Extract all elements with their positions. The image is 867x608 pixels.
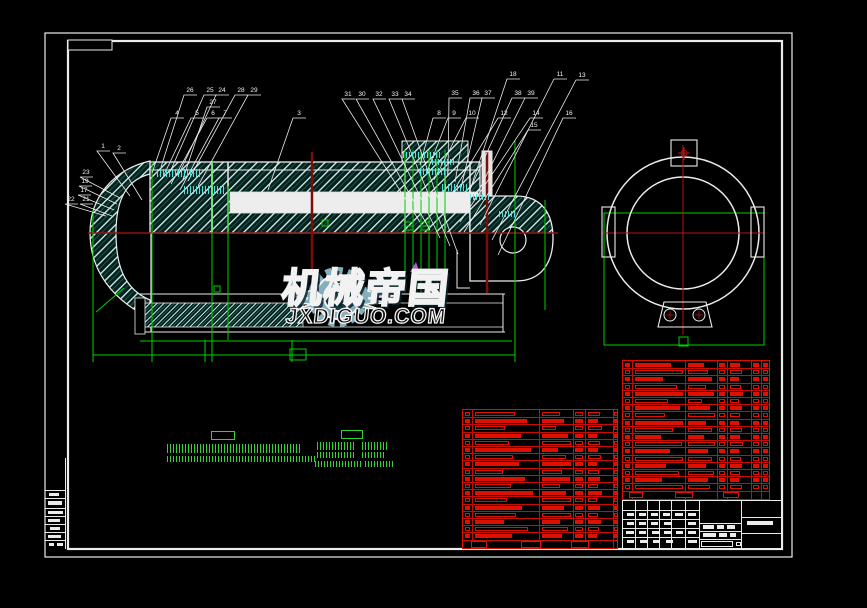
watermark-brand-text: 机械帝国 [280, 269, 452, 309]
table-cell-text [763, 428, 768, 432]
table-cell-text [753, 478, 759, 482]
title-block-line [623, 528, 699, 529]
table-cell-text [542, 441, 571, 445]
table-row-line [623, 455, 769, 456]
balloon-number: 15 [530, 122, 538, 129]
row-index-mark [625, 471, 630, 475]
title-block-line [635, 501, 636, 548]
table-cell-text [719, 485, 725, 489]
title-block-text [664, 531, 671, 534]
table-cell-text [635, 413, 665, 417]
table-cell-text [719, 478, 725, 482]
table-cell-text [730, 370, 742, 374]
table-cell-text [753, 471, 759, 475]
balloon-number: 35 [451, 90, 459, 97]
table-cell-text [588, 491, 602, 495]
table-cell-text [753, 435, 759, 439]
table-cell-text [719, 457, 725, 461]
row-index-mark [465, 534, 470, 538]
note-text-line [362, 452, 384, 458]
table-cell-text [719, 399, 725, 403]
strip-line [45, 524, 65, 525]
table-cell-text [614, 498, 618, 502]
table-cell-text [542, 455, 566, 459]
balloon-number: 17 [80, 187, 88, 194]
table-cell-text [763, 478, 768, 482]
table-row-line [463, 446, 617, 447]
table-cell-text [753, 428, 759, 432]
table-cell-text [575, 498, 583, 502]
row-index-mark [625, 478, 630, 482]
table-cell-text [635, 385, 677, 389]
table-row-line [623, 447, 769, 448]
table-cell-text [688, 421, 706, 425]
title-block [622, 500, 782, 549]
cyan-dimension-label [432, 159, 454, 165]
table-cell-text [475, 448, 531, 452]
parts-list-table [622, 360, 770, 500]
table-column-line [539, 410, 540, 548]
table-cell-text [719, 377, 725, 381]
row-index-mark [465, 448, 470, 452]
table-cell-text [753, 413, 759, 417]
title-block-text [653, 540, 660, 543]
table-row-line [463, 525, 617, 526]
table-row-line [623, 483, 769, 484]
table-cell-text [719, 471, 725, 475]
table-cell-text [753, 421, 759, 425]
table-cell-text [719, 435, 725, 439]
table-cell-text [753, 464, 759, 468]
balloon-number: 4 [175, 110, 179, 117]
strip-line [45, 516, 65, 517]
table-cell-text [542, 513, 571, 517]
balloon-number: 6 [211, 110, 215, 117]
drum-bore [230, 192, 478, 213]
row-index-mark [465, 455, 470, 459]
table-cell-text [635, 485, 683, 489]
table-cell-text [635, 406, 680, 410]
balloon-number: 18 [509, 71, 517, 78]
balloon-number: 12 [500, 110, 508, 117]
table-cell-text [475, 455, 513, 459]
table-row-line [463, 532, 617, 533]
table-cell-text [575, 419, 583, 423]
table-cell-text [688, 399, 702, 403]
table-cell-text [575, 441, 583, 445]
footer-box [629, 492, 643, 498]
row-index-mark [625, 399, 630, 403]
table-cell-text [635, 421, 683, 425]
title-block-line [623, 537, 699, 538]
table-cell-text [719, 413, 725, 417]
balloon-number: 26 [186, 87, 194, 94]
title-block-text [747, 521, 773, 525]
row-index-mark [465, 506, 470, 510]
balloon-number: 10 [468, 110, 476, 117]
table-row-line [463, 439, 617, 440]
table-cell-text [588, 498, 597, 502]
end-cap-port [500, 227, 526, 253]
table-cell-text [614, 527, 618, 531]
table-row-line [463, 504, 617, 505]
row-index-mark [625, 385, 630, 389]
row-index-mark [625, 363, 630, 367]
table-cell-text [730, 421, 739, 425]
table-cell-text [688, 485, 710, 489]
strip-text [48, 511, 63, 514]
table-column-line [685, 361, 686, 499]
strip-text [48, 519, 60, 522]
table-column-line [751, 361, 752, 499]
table-row-line [463, 518, 617, 519]
row-index-mark [465, 462, 470, 466]
row-index-mark [625, 428, 630, 432]
table-cell-text [542, 470, 562, 474]
cyan-dimension-label [442, 184, 468, 191]
table-cell-text [575, 527, 583, 531]
table-cell-text [575, 477, 583, 481]
row-index-mark [625, 413, 630, 417]
table-cell-text [730, 413, 740, 417]
title-block-text [639, 531, 646, 534]
table-cell-text [688, 413, 715, 417]
table-column-line [472, 410, 473, 548]
inner-tube-section [143, 303, 303, 327]
table-cell-text [575, 484, 583, 488]
cyan-dimension-label [157, 169, 201, 177]
title-block-text [688, 513, 696, 516]
table-cell-text [614, 419, 618, 423]
table-cell-text [475, 484, 511, 488]
balloon-number: 39 [527, 90, 535, 97]
table-cell-text [635, 442, 682, 446]
table-cell-text [719, 370, 725, 374]
balloon-number: 27 [209, 99, 217, 106]
table-cell-text [475, 441, 509, 445]
row-index-mark [465, 498, 470, 502]
table-row-line [463, 496, 617, 497]
table-cell-text [542, 477, 570, 481]
strip-text [49, 543, 54, 546]
table-cell-text [542, 498, 571, 502]
title-block-text [627, 522, 634, 525]
table-cell-text [730, 442, 743, 446]
table-footer-line [623, 491, 769, 492]
datum-square [214, 286, 220, 292]
table-cell-text [763, 370, 768, 374]
table-cell-text [475, 434, 521, 438]
table-cell-text [575, 412, 583, 416]
table-cell-text [588, 484, 598, 488]
table-cell-text [763, 363, 768, 367]
title-block-text [703, 533, 716, 537]
table-column-line [761, 361, 762, 499]
table-cell-text [588, 462, 597, 466]
title-block-line [685, 501, 686, 548]
strip-text [57, 543, 63, 546]
table-cell-text [475, 477, 525, 481]
table-cell-text [688, 435, 704, 439]
title-block-text [676, 531, 683, 534]
balloon-number: 11 [557, 71, 564, 78]
table-cell-text [753, 406, 759, 410]
strip-line [45, 490, 65, 491]
table-cell-text [688, 478, 708, 482]
table-cell-text [575, 426, 583, 430]
table-cell-text [753, 392, 759, 396]
table-row-line [623, 433, 769, 434]
table-cell-text [542, 412, 560, 416]
balloon-number: 32 [375, 91, 383, 98]
title-block-text [626, 531, 634, 534]
table-cell-text [688, 457, 712, 461]
row-index-mark [465, 441, 470, 445]
title-block-line [741, 517, 783, 518]
title-block-line [623, 510, 699, 511]
table-cell-text [753, 485, 759, 489]
strip-line [45, 540, 65, 541]
table-row-line [463, 417, 617, 418]
table-row-line [623, 462, 769, 463]
table-cell-text [763, 406, 768, 410]
title-block-text [640, 540, 647, 543]
table-cell-text [614, 426, 618, 430]
title-block-text [688, 540, 697, 543]
table-cell-text [753, 442, 759, 446]
row-index-mark [625, 406, 630, 410]
table-cell-text [588, 448, 598, 452]
note-text-line [317, 442, 355, 450]
table-cell-text [542, 462, 571, 466]
title-block-text [639, 513, 646, 516]
cyan-dimension-label [420, 168, 448, 175]
table-cell-text [588, 441, 600, 445]
parts-list-table [462, 409, 618, 549]
table-cell-text [575, 434, 583, 438]
end-view [602, 140, 764, 335]
title-block-line [699, 539, 741, 540]
table-cell-text [730, 428, 742, 432]
balloon-number: 30 [358, 91, 366, 98]
title-block-line [741, 533, 783, 534]
table-row-line [623, 375, 769, 376]
table-row-line [623, 469, 769, 470]
balloon-number: 7 [223, 110, 227, 117]
table-cell-text [542, 434, 568, 438]
table-cell-text [719, 428, 725, 432]
table-cell-text [730, 449, 739, 453]
title-block-line [623, 519, 699, 520]
title-block-text [675, 513, 683, 516]
table-cell-text [730, 471, 740, 475]
table-cell-text [614, 520, 618, 524]
table-cell-text [475, 498, 507, 502]
table-row-line [623, 404, 769, 405]
table-row-line [463, 424, 617, 425]
table-cell-text [719, 385, 725, 389]
table-cell-text [588, 513, 598, 517]
table-cell-text [635, 363, 671, 367]
table-cell-text [635, 471, 679, 475]
row-index-mark [465, 520, 470, 524]
table-column-line [727, 361, 728, 499]
table-cell-text [763, 385, 768, 389]
table-cell-text [763, 413, 768, 417]
table-cell-text [588, 520, 601, 524]
table-cell-text [614, 448, 618, 452]
balloon-number: 22 [67, 196, 75, 203]
row-index-mark [465, 419, 470, 423]
table-cell-text [730, 478, 739, 482]
table-cell-text [719, 392, 725, 396]
table-cell-text [614, 491, 618, 495]
table-cell-text [542, 506, 564, 510]
table-cell-text [688, 406, 710, 410]
balloon-number: 2 [117, 145, 121, 152]
title-block-text [652, 531, 659, 534]
table-cell-text [542, 534, 562, 538]
table-cell-text [763, 392, 768, 396]
note-heading-box [211, 431, 235, 440]
row-index-mark [465, 527, 470, 531]
table-cell-text [588, 412, 600, 416]
table-cell-text [730, 435, 740, 439]
table-cell-text [588, 527, 599, 531]
footer-box [471, 541, 487, 548]
title-block-box [701, 541, 733, 547]
table-cell-text [688, 471, 714, 475]
table-row-line [623, 397, 769, 398]
note-text-line [315, 461, 361, 467]
table-cell-text [614, 513, 618, 517]
table-cell-text [588, 477, 600, 481]
strip-text [48, 501, 62, 505]
table-cell-text [763, 485, 768, 489]
balloon-number: 25 [206, 87, 214, 94]
table-cell-text [763, 435, 768, 439]
table-column-line [717, 361, 718, 499]
table-cell-text [588, 419, 598, 423]
table-cell-text [542, 484, 560, 488]
table-cell-text [475, 491, 533, 495]
table-cell-text [763, 442, 768, 446]
title-block-text [627, 540, 634, 543]
title-block-line [699, 531, 741, 532]
table-cell-text [719, 464, 725, 468]
strip-line [45, 498, 65, 499]
footer-box [521, 541, 541, 548]
title-block-line [699, 501, 700, 548]
balloon-number: 29 [250, 87, 258, 94]
table-cell-text [753, 449, 759, 453]
table-cell-text [575, 513, 583, 517]
table-cell-text [719, 406, 725, 410]
corner-part-tag [68, 40, 112, 50]
table-cell-text [763, 421, 768, 425]
table-cell-text [575, 462, 583, 466]
table-cell-text [542, 527, 568, 531]
title-block-text [651, 513, 658, 516]
table-cell-text [730, 377, 739, 381]
table-cell-text [575, 491, 583, 495]
title-block-text [663, 513, 670, 516]
table-cell-text [575, 534, 583, 538]
strip-line [45, 532, 65, 533]
table-cell-text [475, 462, 519, 466]
table-cell-text [730, 363, 740, 367]
footer-box [675, 492, 693, 498]
strip-text [50, 527, 60, 530]
table-cell-text [475, 506, 522, 510]
table-cell-text [475, 520, 504, 524]
table-cell-text [688, 363, 704, 367]
balloon-number: 38 [514, 90, 522, 97]
table-column-line [585, 410, 586, 548]
table-cell-text [475, 419, 527, 423]
table-cell-text [635, 464, 666, 468]
row-index-mark [465, 491, 470, 495]
table-cell-text [763, 449, 768, 453]
table-cell-text [719, 363, 725, 367]
table-cell-text [614, 455, 618, 459]
title-block-text [730, 533, 736, 537]
footer-box [571, 541, 589, 548]
cyan-dimension-label [184, 186, 224, 194]
title-block-text [717, 525, 724, 529]
table-cell-text [614, 534, 618, 538]
table-cell-text [542, 520, 560, 524]
table-cell-text [719, 421, 725, 425]
table-cell-text [575, 506, 583, 510]
table-row-line [463, 475, 617, 476]
row-index-mark [625, 435, 630, 439]
cad-drawing-canvas[interactable]: 2625242829274567122319172221331303233343… [0, 0, 867, 608]
table-cell-text [475, 534, 512, 538]
balloon-number: 37 [484, 90, 492, 97]
table-row-line [463, 432, 617, 433]
row-index-mark [465, 513, 470, 517]
balloon-number: 19 [81, 178, 89, 185]
table-cell-text [542, 448, 558, 452]
table-cell-text [763, 471, 768, 475]
row-index-mark [625, 449, 630, 453]
row-index-mark [465, 434, 470, 438]
table-row-line [463, 468, 617, 469]
table-column-line [573, 410, 574, 548]
watermark: JX 机械帝国 JXDIGUO.COM [280, 260, 600, 336]
leader-line [170, 95, 217, 172]
table-cell-text [542, 426, 556, 430]
balloon-number: 14 [532, 110, 540, 117]
note-text-line [167, 456, 315, 462]
table-cell-text [475, 412, 515, 416]
table-cell-text [730, 399, 739, 403]
table-cell-text [542, 491, 566, 495]
row-index-mark [465, 484, 470, 488]
table-cell-text [730, 406, 742, 410]
table-cell-text [753, 399, 759, 403]
table-cell-text [588, 506, 600, 510]
table-cell-text [635, 435, 661, 439]
title-block-box [736, 542, 741, 546]
table-cell-text [763, 377, 768, 381]
table-cell-text [763, 399, 768, 403]
table-row-line [623, 368, 769, 369]
row-index-mark [625, 485, 630, 489]
table-cell-text [688, 442, 715, 446]
table-cell-text [635, 370, 683, 374]
